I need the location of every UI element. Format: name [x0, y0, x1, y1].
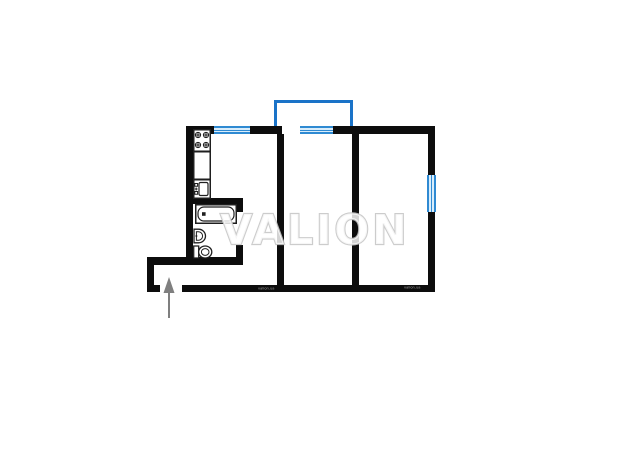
wall-top-right-segment	[333, 126, 435, 134]
watermark: VALION	[212, 201, 418, 259]
wall-bottom	[182, 285, 435, 292]
entrance-arrow-icon	[161, 276, 178, 319]
balcony-outline-right	[350, 100, 353, 126]
balcony-outline-top	[274, 100, 353, 103]
wash-basin-icon	[193, 228, 208, 244]
balcony-outline-left	[274, 100, 277, 126]
floor-plan: valion.ua valion.ua VALION	[0, 0, 630, 475]
wall-watermark-left: valion.ua	[258, 287, 274, 291]
toilet-icon	[193, 244, 213, 260]
wall-top-middle-segment	[250, 126, 282, 134]
wall-nook-stub	[147, 285, 160, 292]
wall-outer-left	[186, 126, 193, 265]
stove-icon	[193, 129, 211, 152]
kitchen-sink-icon	[193, 179, 211, 199]
watermark-text: VALION	[220, 206, 409, 254]
kitchen-window-icon	[214, 126, 250, 134]
bedroom-window-icon	[427, 175, 436, 212]
wall-watermark-right: valion.ua	[404, 286, 420, 290]
balcony-window-icon	[300, 126, 333, 134]
kitchen-counter-icon	[193, 151, 211, 180]
